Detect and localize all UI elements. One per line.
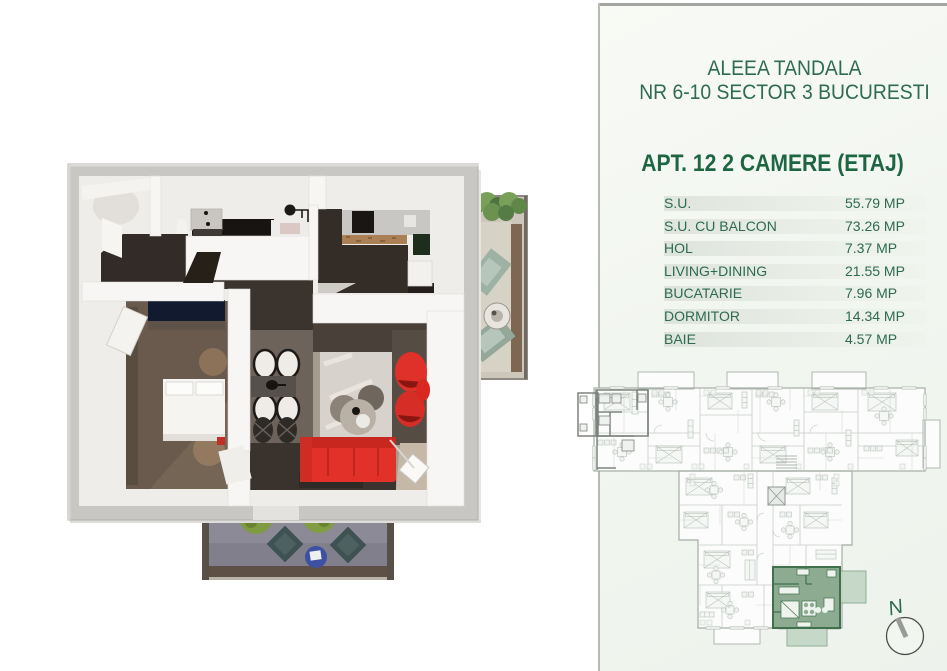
svg-text:N: N [886, 595, 906, 620]
